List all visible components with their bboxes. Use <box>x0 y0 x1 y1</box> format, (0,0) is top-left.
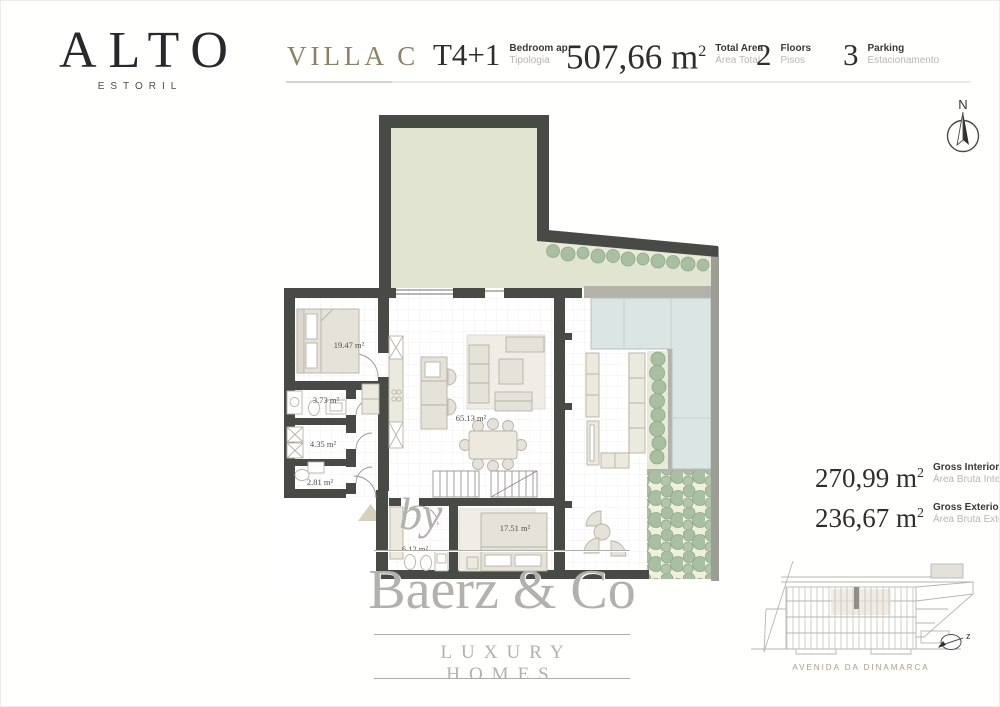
total-area-value: 507,66 <box>566 38 662 77</box>
typology-value: T4+1 <box>433 37 500 72</box>
parking-label-en: Parking <box>868 43 940 55</box>
north-label: N <box>958 97 967 112</box>
watermark-tagline: LUXURY HOMES <box>373 642 631 686</box>
street-name: AVENIDA DA DINAMARCA <box>746 663 976 672</box>
stat-typology: T4+1 Bedroom ap. Tipologia <box>433 37 571 73</box>
watermark-line-bottom <box>374 678 630 679</box>
exterior-area-unit: m <box>896 503 917 533</box>
total-area-sup: 2 <box>698 43 706 60</box>
parking-value: 3 <box>843 37 859 72</box>
gross-interior-area: 270,99 m2 Gross Interior Area Área Bruta… <box>791 459 1000 493</box>
watermark-line-middle <box>374 634 630 635</box>
north-compass-icon: N <box>939 95 987 161</box>
section-marker-label: z <box>966 631 971 641</box>
room-label-wc: 2.81 m² <box>307 477 334 487</box>
typology-label-en: Bedroom ap. <box>509 43 570 55</box>
room-label-bedroom1: 19.47 m² <box>334 340 365 350</box>
stat-floors: 2 Floors Pisos <box>756 37 811 73</box>
brand-name: ALTO <box>59 23 223 79</box>
hedge-strip <box>647 351 668 469</box>
floors-label-en: Floors <box>781 43 812 55</box>
floors-value: 2 <box>756 37 772 72</box>
exterior-area-value: 236,67 <box>815 503 889 533</box>
sofa-area <box>467 335 545 411</box>
building-elevation-sketch: z <box>736 549 986 661</box>
bed-secondary <box>459 509 547 571</box>
garden-bushes <box>647 471 713 579</box>
exterior-area-label-pt: Área Bruta Exterior <box>933 514 1000 526</box>
room-label-bath1: 3.73 m² <box>313 395 340 405</box>
floor-plan: 19.47 m² 3.73 m² 4.35 m² 2.81 m² 65.13 m… <box>271 111 731 591</box>
watermark-line-top <box>374 550 630 551</box>
floors-label-pt: Pisos <box>781 55 812 67</box>
typology-label-pt: Tipologia <box>509 55 570 67</box>
stat-parking: 3 Parking Estacionamento <box>843 37 939 73</box>
room-label-closet: 4.35 m² <box>310 439 337 449</box>
brand-location: ESTORIL <box>57 81 223 92</box>
interior-area-unit: m <box>896 463 917 493</box>
interior-area-label-pt: Área Bruta Interior <box>933 474 1000 486</box>
room-label-bedroom2: 17.51 m² <box>500 523 531 533</box>
villa-title-underline <box>286 81 392 83</box>
room-label-bath2: 6.12 m² <box>402 544 429 554</box>
gross-exterior-area: 236,67 m2 Gross Exterior Area Área Bruta… <box>791 499 1000 533</box>
parking-label-pt: Estacionamento <box>868 55 940 67</box>
floorplan-page: ALTO ESTORIL VILLA C T4+1 Bedroom ap. Ti… <box>0 0 1000 707</box>
room-label-living: 65.13 m² <box>456 413 487 423</box>
stat-total-area: 507,66 m2 Total Area Área Total <box>566 34 763 76</box>
villa-title: VILLA C <box>287 41 419 72</box>
interior-area-value: 270,99 <box>815 463 889 493</box>
exterior-area-label-en: Gross Exterior Area <box>933 502 1000 514</box>
interior-area-label-en: Gross Interior Area <box>933 462 1000 474</box>
brand-logo: ALTO ESTORIL <box>53 23 223 92</box>
total-area-unit: m <box>671 38 698 77</box>
boundary-wall <box>711 247 719 581</box>
section-marker-icon: z <box>938 631 971 650</box>
